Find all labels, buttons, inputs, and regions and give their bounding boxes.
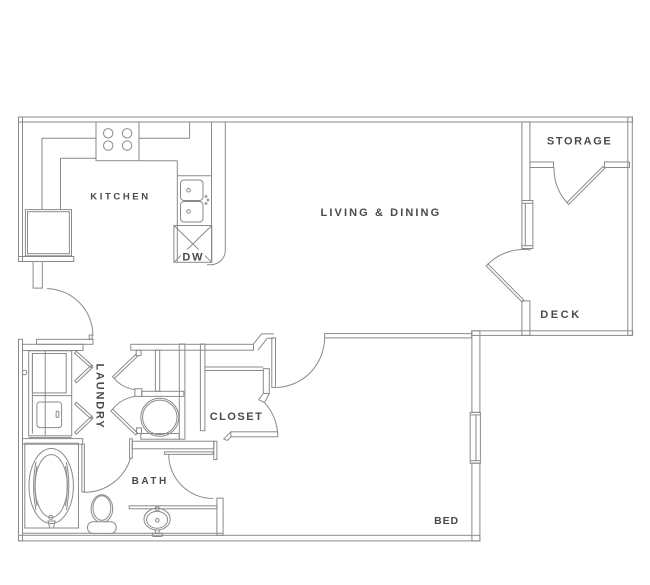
svg-text:LIVING & DINING: LIVING & DINING xyxy=(321,207,442,219)
svg-text:LAUNDRY: LAUNDRY xyxy=(94,364,106,430)
svg-text:BATH: BATH xyxy=(132,476,169,487)
svg-text:BED: BED xyxy=(434,515,459,527)
svg-text:CLOSET: CLOSET xyxy=(210,411,264,423)
svg-text:KITCHEN: KITCHEN xyxy=(90,192,150,203)
svg-text:DECK: DECK xyxy=(540,309,582,321)
svg-text:STORAGE: STORAGE xyxy=(547,136,612,148)
svg-text:DW: DW xyxy=(182,252,204,264)
